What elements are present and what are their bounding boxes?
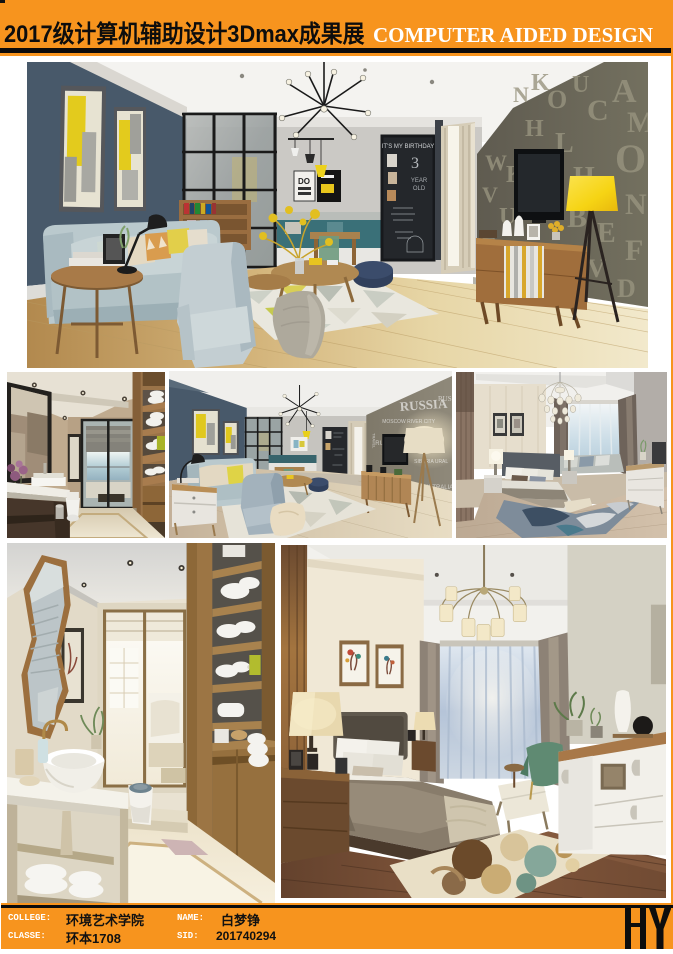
svg-text:IT'S MY BIRTHDAY: IT'S MY BIRTHDAY — [382, 144, 435, 150]
svg-text:O: O — [615, 136, 646, 181]
svg-text:DO: DO — [298, 177, 310, 186]
svg-text:N: N — [513, 82, 529, 107]
svg-text:W: W — [485, 150, 507, 175]
svg-text:C: C — [587, 94, 609, 127]
svg-text:H: H — [525, 116, 544, 142]
svg-text:YEAR: YEAR — [411, 178, 428, 184]
svg-text:OLD: OLD — [413, 186, 426, 192]
svg-text:A: A — [612, 73, 637, 110]
svg-text:O: O — [547, 85, 567, 114]
svg-text:SIBERIA URAL: SIBERIA URAL — [414, 459, 448, 465]
svg-text:RUSSIA: RUSSIA — [438, 395, 452, 403]
svg-text:MOSCOW RIVER CITY: MOSCOW RIVER CITY — [382, 419, 435, 425]
svg-text:N: N — [625, 188, 647, 221]
svg-text:F: F — [625, 234, 643, 267]
svg-text:D: D — [617, 274, 636, 303]
svg-text:M: M — [627, 106, 648, 139]
svg-text:V: V — [482, 182, 498, 207]
svg-text:3: 3 — [411, 155, 419, 172]
